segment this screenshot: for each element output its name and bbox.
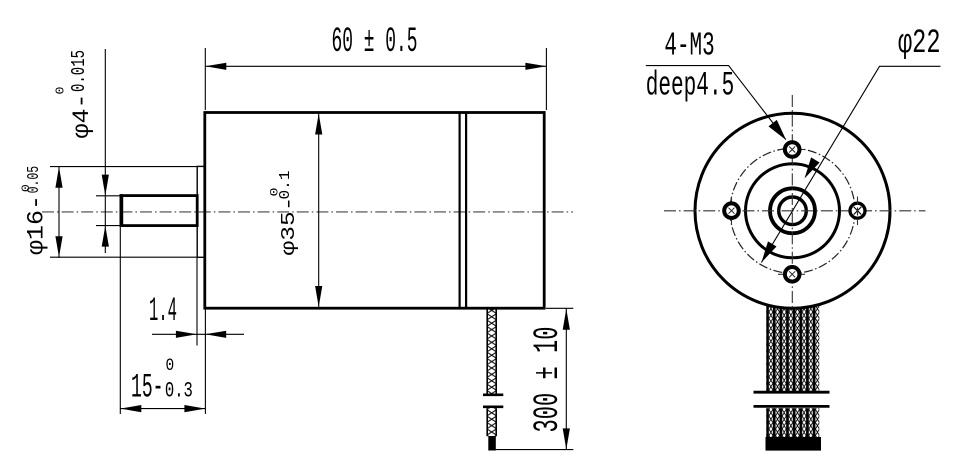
svg-text:φ4-: φ4- — [69, 94, 95, 139]
svg-text:300 ± 10: 300 ± 10 — [527, 327, 568, 433]
svg-text:0: 0 — [54, 87, 68, 95]
svg-text:60 ± 0.5: 60 ± 0.5 — [332, 22, 418, 62]
svg-text:4-M3: 4-M3 — [664, 28, 714, 65]
svg-text:φ22: φ22 — [898, 25, 941, 63]
svg-text:φ35-: φ35- — [278, 197, 300, 256]
svg-text:15-: 15- — [131, 370, 164, 408]
svg-text:1.4: 1.4 — [149, 293, 177, 331]
svg-text:0: 0 — [21, 184, 33, 192]
svg-text:0: 0 — [270, 188, 282, 197]
svg-text:0.3: 0.3 — [165, 379, 193, 404]
svg-text:0.015: 0.015 — [68, 50, 90, 92]
svg-text:0: 0 — [166, 356, 175, 376]
svg-text:deep4.5: deep4.5 — [646, 68, 734, 106]
svg-text:φ16-: φ16- — [24, 195, 50, 255]
